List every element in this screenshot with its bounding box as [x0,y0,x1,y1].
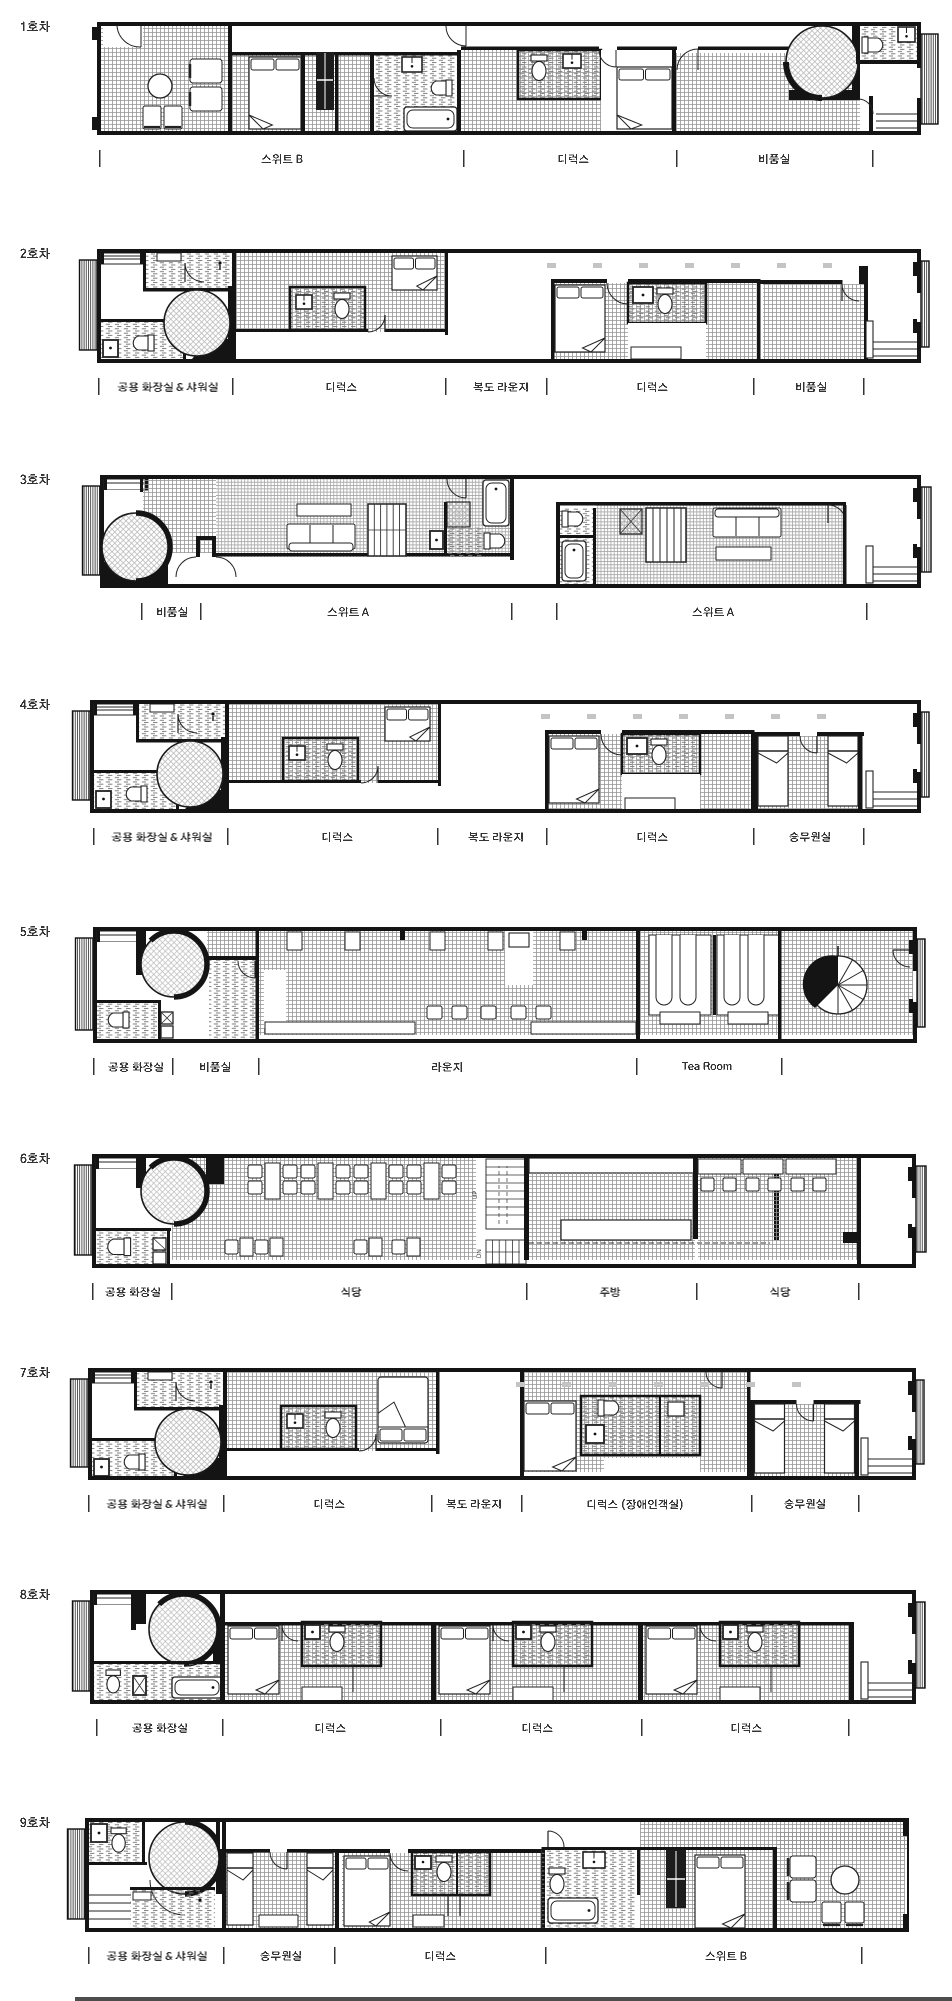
svg-text:UP: UP [473,1191,479,1199]
svg-text:DN: DN [477,1249,483,1258]
